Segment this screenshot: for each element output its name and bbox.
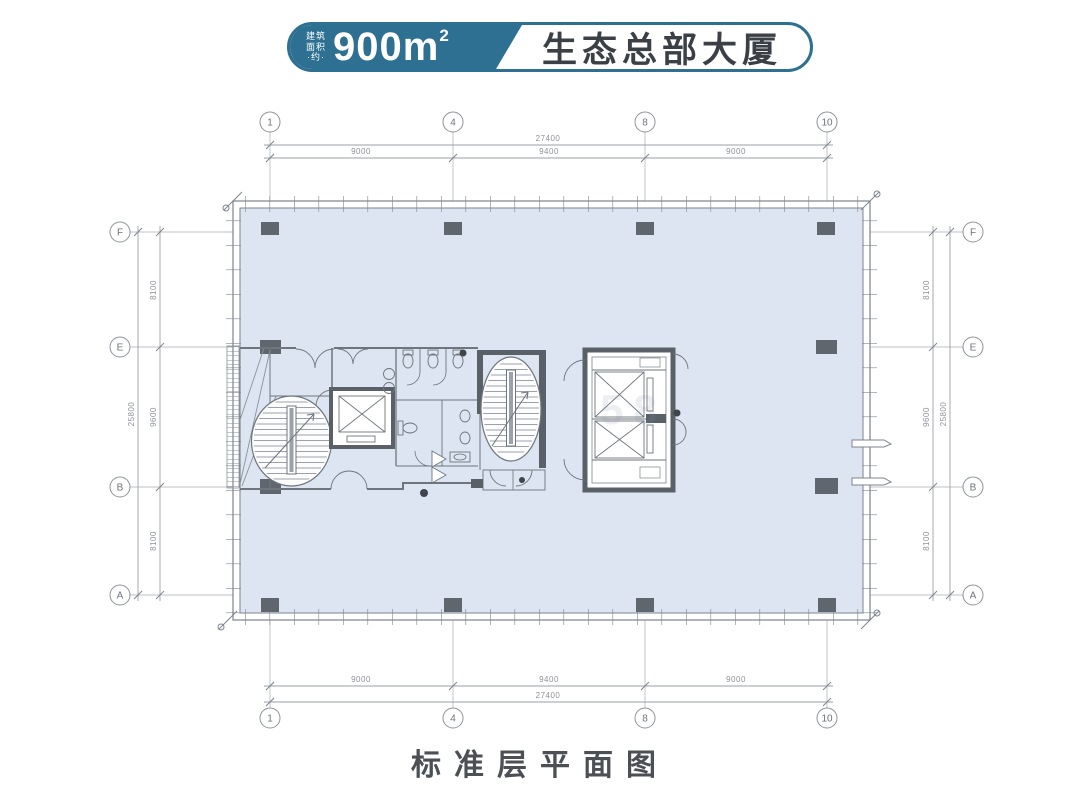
dim-total-width-top: 27400 bbox=[536, 134, 561, 143]
grid-bubble-top-8: 8 bbox=[642, 118, 648, 129]
grid-bubble-bottom-10: 10 bbox=[821, 714, 833, 725]
grid-bubble-right-B: B bbox=[970, 483, 977, 494]
dim-w3-top: 9000 bbox=[726, 147, 746, 156]
dim-h2-right: 9600 bbox=[922, 407, 931, 427]
grid-bubble-left-B: B bbox=[117, 483, 124, 494]
grid-bubble-right-E: E bbox=[970, 343, 977, 354]
dim-h1-left: 8100 bbox=[149, 280, 158, 300]
dim-total-height-left: 25800 bbox=[127, 402, 136, 427]
dim-w3-bottom: 9000 bbox=[726, 675, 746, 684]
service-elevator bbox=[331, 389, 393, 447]
caption: 标准层平面图 bbox=[0, 740, 1080, 784]
dim-w2-bottom: 9400 bbox=[539, 675, 559, 684]
grid-bubble-bottom-4: 4 bbox=[450, 714, 456, 725]
dim-w1-top: 9000 bbox=[351, 147, 371, 156]
dim-w1-bottom: 9000 bbox=[351, 675, 371, 684]
watermark: 58 bbox=[600, 386, 667, 433]
grid-bubble-top-4: 4 bbox=[450, 118, 456, 129]
floor-plan-svg: 27400 9000 9400 9000 9000 9400 9000 2740… bbox=[0, 0, 1080, 810]
stair-1 bbox=[252, 396, 332, 486]
dim-w2-top: 9400 bbox=[539, 147, 559, 156]
grid-bubble-right-A: A bbox=[970, 591, 977, 602]
dim-h2-left: 9600 bbox=[149, 407, 158, 427]
grid-bubble-top-10: 10 bbox=[821, 118, 833, 129]
dim-h3-right: 8100 bbox=[922, 531, 931, 551]
grid-bubble-top-1: 1 bbox=[267, 118, 273, 129]
dim-total-height-right: 25800 bbox=[939, 402, 948, 427]
dim-h3-left: 8100 bbox=[149, 531, 158, 551]
dim-h1-right: 8100 bbox=[922, 280, 931, 300]
grid-bubble-bottom-1: 1 bbox=[267, 714, 273, 725]
grid-bubble-bottom-8: 8 bbox=[642, 714, 648, 725]
grid-bubble-right-F: F bbox=[970, 228, 976, 239]
dim-total-width-bottom: 27400 bbox=[536, 691, 561, 700]
grid-bubble-left-A: A bbox=[117, 591, 124, 602]
grid-bubble-left-F: F bbox=[117, 228, 123, 239]
grid-bubble-left-E: E bbox=[117, 343, 124, 354]
